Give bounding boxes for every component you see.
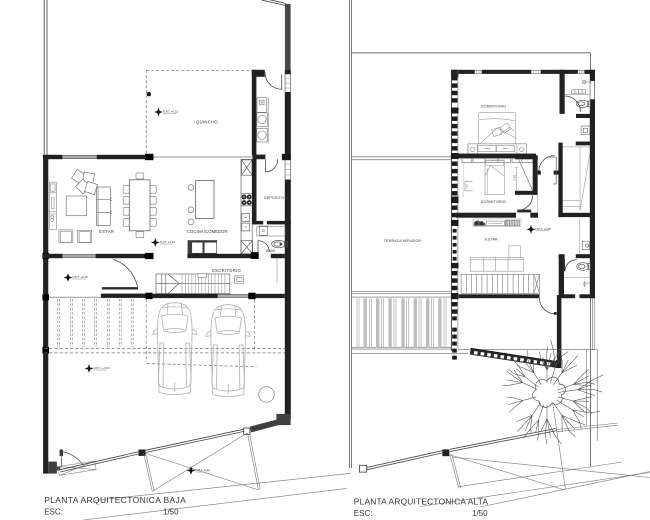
svg-text:DORMITORIO: DORMITORIO bbox=[481, 104, 506, 108]
svg-text:ESTAR: ESTAR bbox=[485, 238, 498, 242]
svg-text:COCINA/COMEDOR: COCINA/COMEDOR bbox=[187, 229, 228, 234]
svg-text:TERRAZA MIRADOR: TERRAZA MIRADOR bbox=[384, 239, 422, 243]
svg-text:ESCRITORIO: ESCRITORIO bbox=[212, 268, 241, 273]
svg-text:N.P.T. +0.15: N.P.T. +0.15 bbox=[160, 240, 176, 244]
svg-text:ESC:: ESC: bbox=[44, 507, 63, 516]
svg-text:DORMITORIO: DORMITORIO bbox=[481, 200, 506, 204]
svg-text:PLANTA ARQUITECTONICA BAJA: PLANTA ARQUITECTONICA BAJA bbox=[44, 495, 186, 505]
svg-text:PLANTA ARQUITECTONICA ALTA: PLANTA ARQUITECTONICA ALTA bbox=[354, 497, 489, 507]
svg-text:N.P.T. +0.15: N.P.T. +0.15 bbox=[73, 275, 89, 279]
svg-text:ESC:: ESC: bbox=[354, 509, 373, 518]
svg-text:N.P.T. +2.88: N.P.T. +2.88 bbox=[536, 227, 552, 231]
svg-text:QUINCHO: QUINCHO bbox=[196, 119, 218, 124]
svg-text:ESTAR: ESTAR bbox=[99, 229, 114, 234]
svg-text:N.P.T. +0.15: N.P.T. +0.15 bbox=[163, 110, 179, 114]
svg-text:1/50: 1/50 bbox=[472, 509, 488, 518]
svg-text:BAÑO: BAÑO bbox=[266, 248, 276, 253]
svg-text:2.10: 2.10 bbox=[513, 175, 517, 181]
svg-text:N.P.T. +-0.00: N.P.T. +-0.00 bbox=[94, 366, 110, 370]
svg-text:DEPOSITO: DEPOSITO bbox=[264, 196, 284, 200]
svg-text:N.P.T. -0.40: N.P.T. -0.40 bbox=[196, 468, 211, 472]
svg-text:1/50: 1/50 bbox=[163, 507, 179, 516]
